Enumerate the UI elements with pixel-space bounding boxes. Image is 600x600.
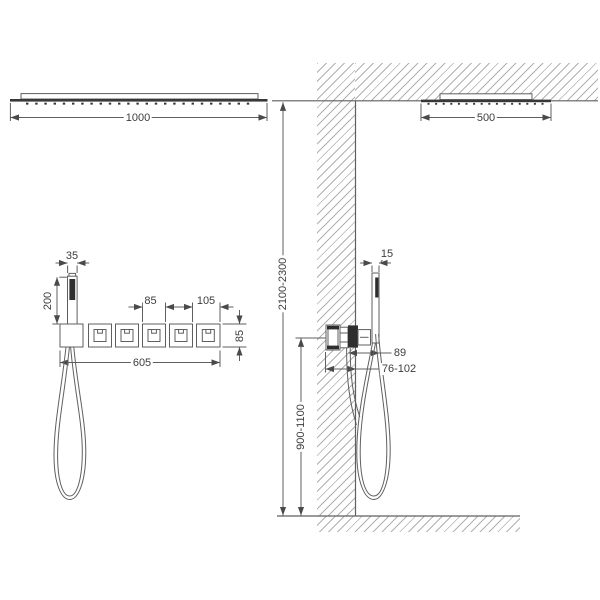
side-valve-assembly [326,325,371,350]
technical-drawing: 1000 500 35 200 85 105 605 85 15 89 76-1… [0,0,600,600]
front-shower-head [10,94,268,104]
label-handset-height: 200 [42,289,54,311]
drawing-linework [0,0,600,600]
label-head-width-front: 1000 [124,112,152,124]
side-handset [372,273,379,343]
dim-rough-in-depth [326,352,380,373]
valve-trim-row [60,324,220,347]
label-height-valve: 900-1100 [295,402,307,452]
side-room-structure [272,101,598,516]
label-handset-depth: 15 [379,248,395,260]
side-shower-head [421,94,551,104]
dim-handset-height-front [52,277,67,324]
label-height-overall: 2100-2300 [277,256,289,313]
label-valve-projection: 89 [392,347,408,359]
dim-handset-width-front [56,263,90,273]
label-row-width: 605 [131,357,153,369]
front-hose [54,347,86,500]
label-head-width-side: 500 [475,112,497,124]
label-valve-spacing: 85 [142,295,158,307]
side-hose [347,334,391,500]
label-row-height: 85 [234,327,246,343]
label-valve-end-spacing: 105 [195,295,217,307]
label-handset-width: 35 [64,250,80,262]
label-rough-in-depth: 76-102 [380,363,418,375]
